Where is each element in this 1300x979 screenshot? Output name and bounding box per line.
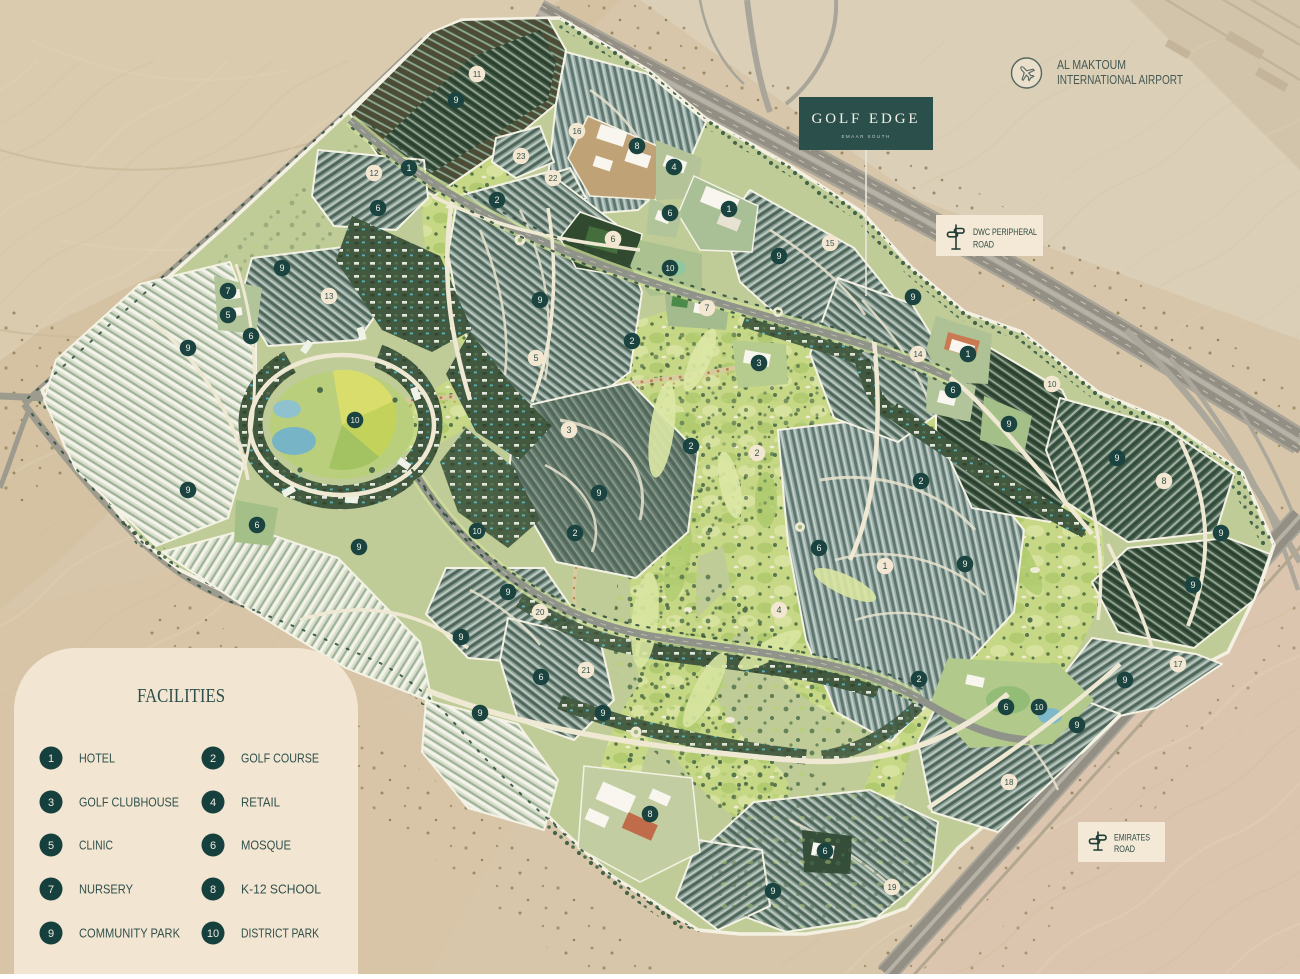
svg-text:6: 6	[210, 840, 216, 852]
svg-text:EMIRATES: EMIRATES	[1114, 833, 1150, 843]
svg-text:COMMUNITY PARK: COMMUNITY PARK	[79, 927, 181, 941]
svg-text:6: 6	[667, 208, 672, 218]
svg-text:ROAD: ROAD	[973, 240, 994, 250]
svg-text:10: 10	[351, 416, 360, 425]
svg-text:ROAD: ROAD	[1114, 844, 1135, 854]
svg-text:DISTRICT PARK: DISTRICT PARK	[241, 927, 320, 941]
svg-text:MOSQUE: MOSQUE	[241, 839, 291, 853]
svg-text:6: 6	[248, 331, 253, 341]
svg-text:15: 15	[826, 239, 835, 248]
svg-text:9: 9	[596, 488, 601, 498]
svg-text:20: 20	[536, 608, 545, 617]
svg-text:2: 2	[916, 674, 921, 684]
svg-text:8: 8	[1161, 476, 1166, 486]
svg-text:9: 9	[1074, 720, 1079, 730]
svg-text:5: 5	[225, 310, 230, 320]
svg-text:9: 9	[1218, 528, 1223, 538]
svg-text:EMAAR SOUTH: EMAAR SOUTH	[841, 134, 890, 139]
svg-text:9: 9	[1190, 580, 1195, 590]
svg-text:6: 6	[254, 520, 259, 530]
svg-text:17: 17	[1174, 660, 1183, 669]
svg-text:2: 2	[918, 476, 923, 486]
svg-text:10: 10	[666, 264, 675, 273]
svg-text:3: 3	[48, 797, 54, 809]
svg-text:4: 4	[210, 797, 216, 809]
svg-text:9: 9	[453, 95, 458, 105]
svg-text:NURSERY: NURSERY	[79, 883, 134, 897]
svg-text:2: 2	[494, 195, 499, 205]
svg-text:FACILITIES: FACILITIES	[137, 686, 225, 707]
svg-text:2: 2	[629, 336, 634, 346]
svg-text:9: 9	[48, 928, 54, 940]
svg-text:RETAIL: RETAIL	[241, 796, 280, 810]
svg-text:9: 9	[600, 708, 605, 718]
svg-text:9: 9	[185, 485, 190, 495]
svg-text:6: 6	[610, 234, 615, 244]
svg-text:10: 10	[207, 928, 219, 940]
svg-text:18: 18	[1005, 778, 1014, 787]
svg-text:13: 13	[325, 292, 334, 301]
svg-text:4: 4	[671, 162, 676, 172]
svg-text:9: 9	[185, 343, 190, 353]
svg-text:1: 1	[965, 349, 970, 359]
svg-text:23: 23	[517, 152, 526, 161]
svg-text:10: 10	[1048, 380, 1057, 389]
svg-text:GOLF CLUBHOUSE: GOLF CLUBHOUSE	[79, 796, 179, 810]
svg-text:7: 7	[225, 286, 230, 296]
svg-text:6: 6	[822, 846, 827, 856]
svg-text:AL MAKTOUM: AL MAKTOUM	[1057, 58, 1126, 72]
svg-text:7: 7	[704, 303, 709, 313]
svg-text:19: 19	[888, 883, 897, 892]
svg-text:6: 6	[538, 672, 543, 682]
svg-text:CLINIC: CLINIC	[79, 839, 113, 853]
svg-text:5: 5	[48, 840, 54, 852]
svg-text:3: 3	[756, 358, 761, 368]
svg-text:INTERNATIONAL AIRPORT: INTERNATIONAL AIRPORT	[1057, 73, 1183, 87]
svg-text:22: 22	[549, 174, 558, 183]
svg-text:9: 9	[1114, 453, 1119, 463]
svg-text:16: 16	[573, 127, 582, 136]
svg-text:1: 1	[48, 753, 54, 765]
svg-text:6: 6	[1003, 702, 1008, 712]
svg-text:GOLF EDGE: GOLF EDGE	[811, 111, 920, 127]
svg-text:9: 9	[477, 708, 482, 718]
svg-text:9: 9	[910, 292, 915, 302]
svg-text:1: 1	[406, 163, 411, 173]
svg-text:11: 11	[473, 70, 482, 79]
svg-text:6: 6	[950, 385, 955, 395]
svg-text:2: 2	[688, 441, 693, 451]
svg-text:9: 9	[1006, 419, 1011, 429]
svg-text:10: 10	[473, 527, 482, 536]
svg-text:1: 1	[726, 204, 731, 214]
svg-text:2: 2	[572, 528, 577, 538]
svg-text:14: 14	[914, 350, 923, 359]
svg-text:10: 10	[1035, 703, 1044, 712]
svg-text:12: 12	[370, 169, 379, 178]
svg-text:DWC PERIPHERAL: DWC PERIPHERAL	[973, 227, 1037, 237]
svg-text:1: 1	[882, 561, 887, 571]
svg-text:7: 7	[48, 884, 54, 896]
svg-text:9: 9	[1122, 675, 1127, 685]
svg-text:9: 9	[770, 886, 775, 896]
svg-text:HOTEL: HOTEL	[79, 752, 115, 766]
svg-text:5: 5	[533, 353, 538, 363]
svg-text:4: 4	[776, 605, 781, 615]
svg-text:GOLF COURSE: GOLF COURSE	[241, 752, 319, 766]
svg-text:21: 21	[582, 666, 591, 675]
svg-text:9: 9	[537, 295, 542, 305]
svg-text:K-12 SCHOOL: K-12 SCHOOL	[241, 883, 321, 897]
svg-text:6: 6	[375, 203, 380, 213]
svg-text:8: 8	[647, 809, 652, 819]
svg-text:9: 9	[356, 542, 361, 552]
svg-text:8: 8	[634, 141, 639, 151]
svg-text:3: 3	[566, 425, 571, 435]
svg-text:9: 9	[505, 587, 510, 597]
svg-text:9: 9	[279, 263, 284, 273]
svg-text:6: 6	[816, 543, 821, 553]
svg-text:2: 2	[210, 753, 216, 765]
svg-text:9: 9	[458, 632, 463, 642]
svg-text:9: 9	[776, 251, 781, 261]
svg-text:9: 9	[962, 559, 967, 569]
svg-text:2: 2	[754, 448, 759, 458]
svg-text:8: 8	[210, 884, 216, 896]
